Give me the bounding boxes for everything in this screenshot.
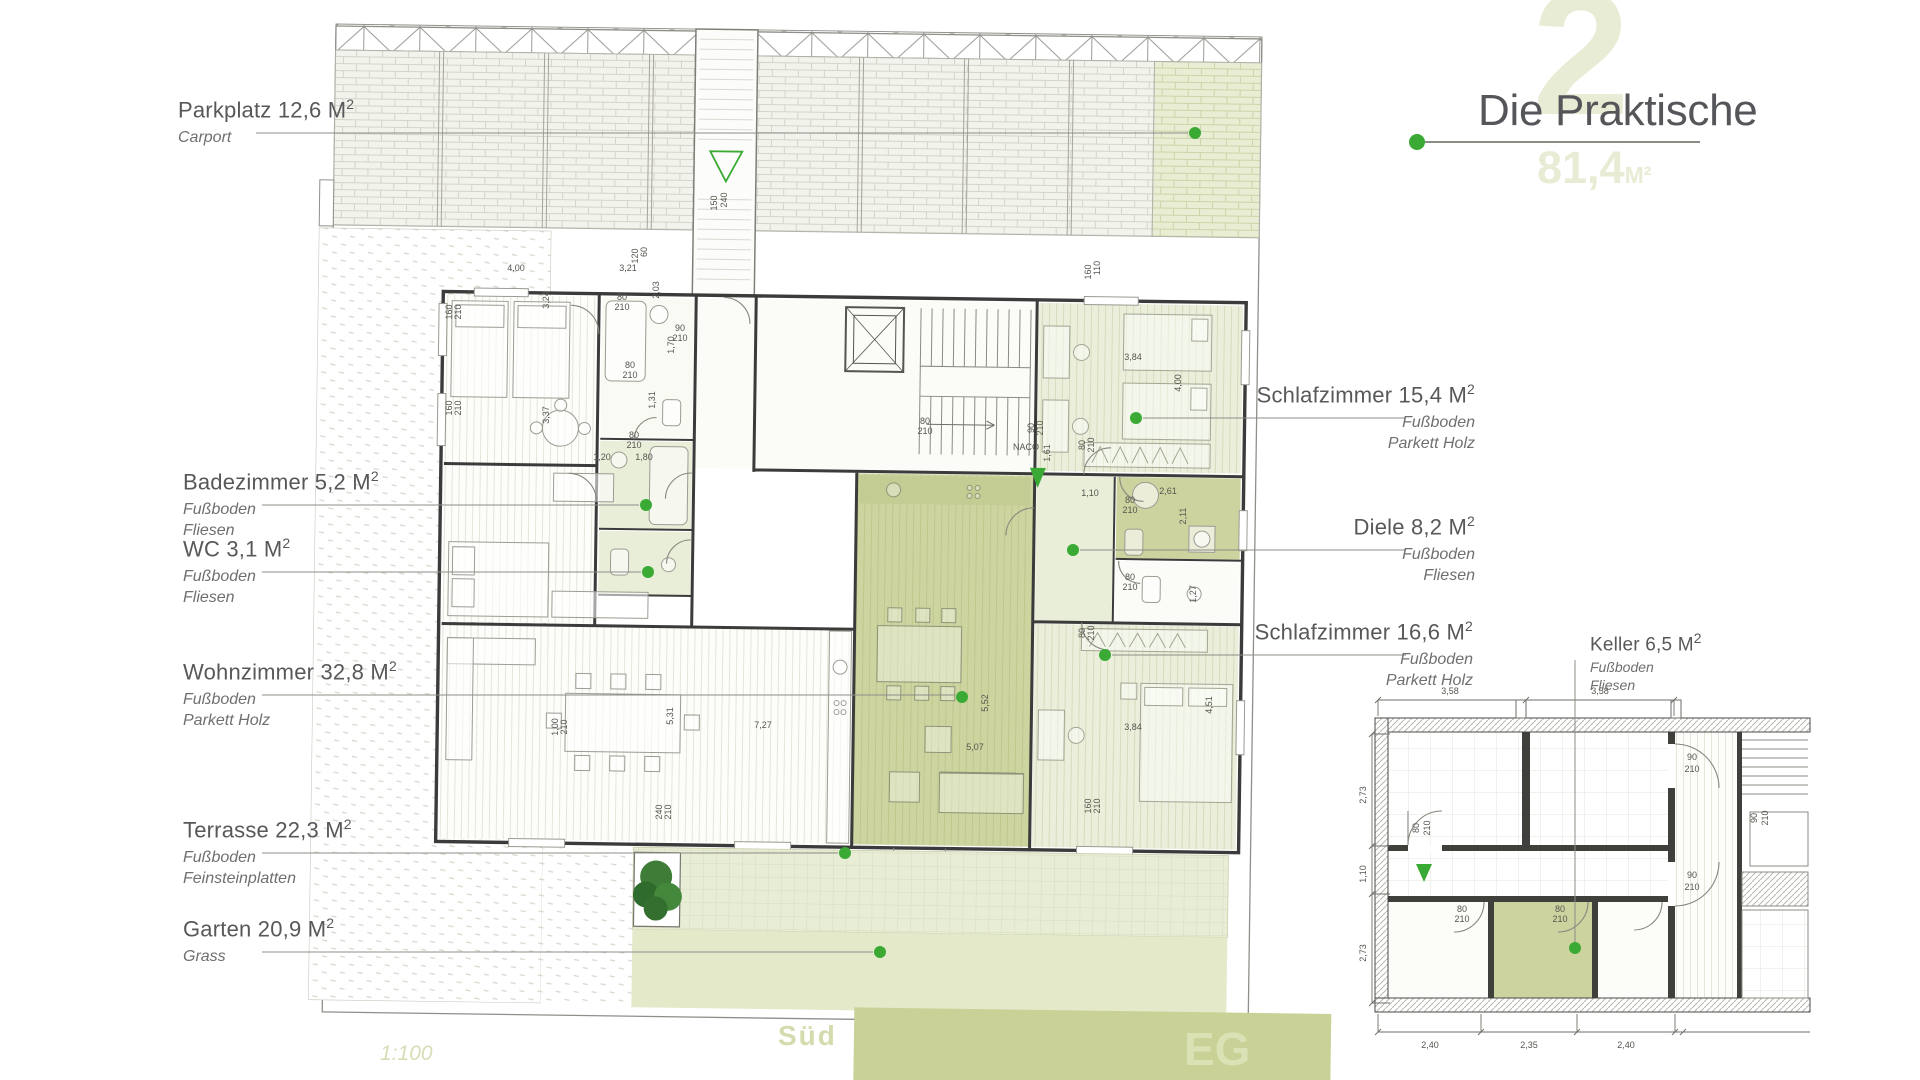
schlafzimmer-15-label: Schlafzimmer 15,4 M2FußbodenParkett Holz <box>1257 381 1475 454</box>
dimension-label: 2,03 <box>651 281 661 299</box>
dimension-label: 2,11 <box>1178 508 1188 525</box>
dimension-label: 210 <box>453 400 463 415</box>
terrasse-subline: Feinsteinplatten <box>183 868 352 889</box>
dimension-label: 2,73 <box>1358 786 1368 804</box>
dimension-label: 80 <box>1555 904 1565 914</box>
dimension-label: 5,31 <box>665 707 675 725</box>
dimension-label: 80 <box>1411 823 1421 833</box>
diele-marker-dot <box>1067 544 1079 556</box>
keller-stairs <box>1742 740 1808 998</box>
gravel-area-south <box>540 848 634 1004</box>
orientation-sued: Süd <box>778 1020 837 1052</box>
badezimmer-subline: Fußboden <box>183 499 379 520</box>
highlighted-parking-stall <box>1152 61 1261 237</box>
dimension-label: 210 <box>663 804 673 819</box>
dimension-label: 210 <box>1035 420 1045 435</box>
terrasse-label: Terrasse 22,3 M2FußbodenFeinsteinplatten <box>183 816 352 889</box>
garten-title: Garten 20,9 M2 <box>183 915 334 942</box>
flat-area: 81,4M² <box>1537 142 1651 194</box>
dimension-label: 1,10 <box>1358 865 1368 883</box>
dimension-label: 90 <box>1687 870 1697 880</box>
dimension-label: 1,27 <box>1188 585 1198 603</box>
parkplatz-marker-dot <box>1189 127 1201 139</box>
schlafzimmer-16-title: Schlafzimmer 16,6 M2 <box>1255 618 1473 645</box>
wc-label: WC 3,1 M2FußbodenFliesen <box>183 535 290 608</box>
dimension-label: 210 <box>614 302 629 312</box>
schlafzimmer-16-subline: Fußboden <box>1255 649 1473 670</box>
keller-plan <box>1369 697 1810 1035</box>
wohnzimmer-marker-dot <box>956 691 968 703</box>
wohnzimmer-title: Wohnzimmer 32,8 M2 <box>183 658 397 685</box>
keller-marker-dot <box>1569 942 1581 954</box>
wc-title: WC 3,1 M2 <box>183 535 290 562</box>
schlafzimmer-16-subline: Parkett Holz <box>1255 670 1473 691</box>
garten-subline: Grass <box>183 946 334 967</box>
dimension-label: 210 <box>1122 582 1137 592</box>
dimension-label: 150 <box>709 195 719 210</box>
dimension-label: 2,73 <box>1358 944 1368 962</box>
dimension-label: 80 <box>629 430 639 440</box>
wohnzimmer-subline: Parkett Holz <box>183 710 397 731</box>
dimension-label: 1,80 <box>635 452 653 462</box>
wc-subline: Fliesen <box>183 587 290 608</box>
dimension-label: 210 <box>917 426 932 436</box>
floorplan-page: 4,003,213,24120602,031602101602108021090… <box>0 0 1920 1080</box>
wc-marker-dot <box>642 566 654 578</box>
dimension-label: 210 <box>622 370 637 380</box>
dimension-label: 1,61 <box>1042 444 1052 462</box>
flat-area-unit: M² <box>1625 162 1652 188</box>
dimension-label: 240 <box>719 192 729 207</box>
dimension-label: 7,27 <box>754 720 772 730</box>
dimension-label: 4,00 <box>507 263 525 273</box>
dimension-label: 2,35 <box>1520 1040 1538 1050</box>
dimension-label: 210 <box>1086 437 1096 452</box>
kitchen-counter <box>859 475 1030 505</box>
dimension-label: 5,52 <box>980 694 990 712</box>
site-gate <box>319 180 334 226</box>
schlafzimmer-15-subline: Parkett Holz <box>1257 433 1475 454</box>
diele-subline: Fußboden <box>1354 544 1475 565</box>
room-wc2 <box>1115 561 1240 624</box>
dimension-label: 4,51 <box>1204 696 1214 714</box>
dimension-label: 3,84 <box>1124 722 1142 732</box>
terrasse-title: Terrasse 22,3 M2 <box>183 816 352 843</box>
garten-area <box>853 1007 1331 1080</box>
dimension-label: 60 <box>639 247 649 257</box>
dimension-label: 90 <box>1687 752 1697 762</box>
dimension-label: 1,20 <box>593 452 611 462</box>
title-rule <box>1418 141 1700 143</box>
dimension-label: NACO <box>1013 442 1039 452</box>
parkplatz-label: Parkplatz 12,6 M2Carport <box>178 96 354 148</box>
dimension-label: 210 <box>1454 914 1469 924</box>
dimension-label: 210 <box>1552 914 1567 924</box>
schlafzimmer-15-marker-dot <box>1130 412 1142 424</box>
dimension-label: 2,61 <box>1159 486 1177 496</box>
badezimmer-title: Badezimmer 5,2 M2 <box>183 468 379 495</box>
terrace <box>632 847 1228 937</box>
parkplatz-title: Parkplatz 12,6 M2 <box>178 96 354 123</box>
wohnzimmer-subline: Fußboden <box>183 689 397 710</box>
dimension-label: 210 <box>626 440 641 450</box>
plan-scale: 1:100 <box>380 1042 433 1066</box>
dimension-label: 210 <box>559 719 569 734</box>
dimension-label: 210 <box>1422 820 1432 835</box>
dimension-label: 3,24 <box>541 291 551 309</box>
dimension-label: 80 <box>1125 572 1135 582</box>
parkplatz-subline: Carport <box>178 127 354 148</box>
garten-label: Garten 20,9 M2Grass <box>183 915 334 967</box>
schlafzimmer-15-title: Schlafzimmer 15,4 M2 <box>1257 381 1475 408</box>
terrasse-subline: Fußboden <box>183 847 352 868</box>
dimension-label: 2,40 <box>1617 1040 1635 1050</box>
dimension-label: 210 <box>1122 505 1137 515</box>
dimension-label: 5,07 <box>966 742 984 752</box>
schlafzimmer-16-label: Schlafzimmer 16,6 M2FußbodenParkett Holz <box>1255 618 1473 691</box>
terrace-tree <box>632 852 682 927</box>
flat-area-value: 81,4 <box>1537 142 1625 193</box>
dimension-label: 80 <box>1457 904 1467 914</box>
dimension-label: 80 <box>625 360 635 370</box>
entrance-walkway <box>692 29 758 296</box>
dimension-label: 210 <box>453 304 463 319</box>
wohnzimmer-label: Wohnzimmer 32,8 M2FußbodenParkett Holz <box>183 658 397 731</box>
diele-title: Diele 8,2 M2 <box>1354 513 1475 540</box>
keller-title: Keller 6,5 M2 <box>1590 630 1702 656</box>
wc-subline: Fußboden <box>183 566 290 587</box>
keller-subline: Fußboden <box>1590 658 1702 676</box>
badezimmer-label: Badezimmer 5,2 M2FußbodenFliesen <box>183 468 379 541</box>
page-title: Die Praktische <box>1478 86 1757 136</box>
dimension-label: 80 <box>920 416 930 426</box>
diele-subline: Fliesen <box>1354 565 1475 586</box>
keller-label: Keller 6,5 M2FußbodenFliesen <box>1590 630 1702 694</box>
dimension-label: 90 <box>675 323 685 333</box>
terrasse-marker-dot <box>839 847 851 859</box>
dimension-label: 210 <box>1092 798 1102 813</box>
dimension-label: 4,00 <box>1173 374 1183 392</box>
diele-label: Diele 8,2 M2FußbodenFliesen <box>1354 513 1475 586</box>
dimension-label: 210 <box>1684 764 1699 774</box>
garden-lawn <box>631 929 1227 1015</box>
dimension-label: 80 <box>1125 495 1135 505</box>
dimension-label: 80 <box>617 292 627 302</box>
stair-hall <box>694 298 1037 473</box>
dimension-label: 1,31 <box>647 391 657 409</box>
dimension-label: 90 <box>1749 813 1759 823</box>
schlafzimmer-15-subline: Fußboden <box>1257 412 1475 433</box>
dimension-label: 210 <box>1086 625 1096 640</box>
schlafzimmer-16-marker-dot <box>1099 649 1111 661</box>
carport-area <box>319 50 1261 239</box>
dimension-label: 210 <box>1760 810 1770 825</box>
floor-level-eg: EG <box>1184 1022 1250 1076</box>
dimension-label: 3,37 <box>541 406 551 424</box>
garten-marker-dot <box>874 946 886 958</box>
dimension-label: 110 <box>1092 261 1102 275</box>
dimension-label: 2,40 <box>1421 1040 1439 1050</box>
dimension-label: 1,10 <box>1081 488 1099 498</box>
badezimmer-marker-dot <box>640 499 652 511</box>
dimension-label: 1,70 <box>666 336 676 354</box>
keller-subline: Fliesen <box>1590 676 1702 694</box>
site-plan <box>307 24 1345 1080</box>
dimension-label: 210 <box>1684 882 1699 892</box>
dimension-label: 3,84 <box>1124 352 1142 362</box>
title-marker-dot <box>1409 134 1425 150</box>
